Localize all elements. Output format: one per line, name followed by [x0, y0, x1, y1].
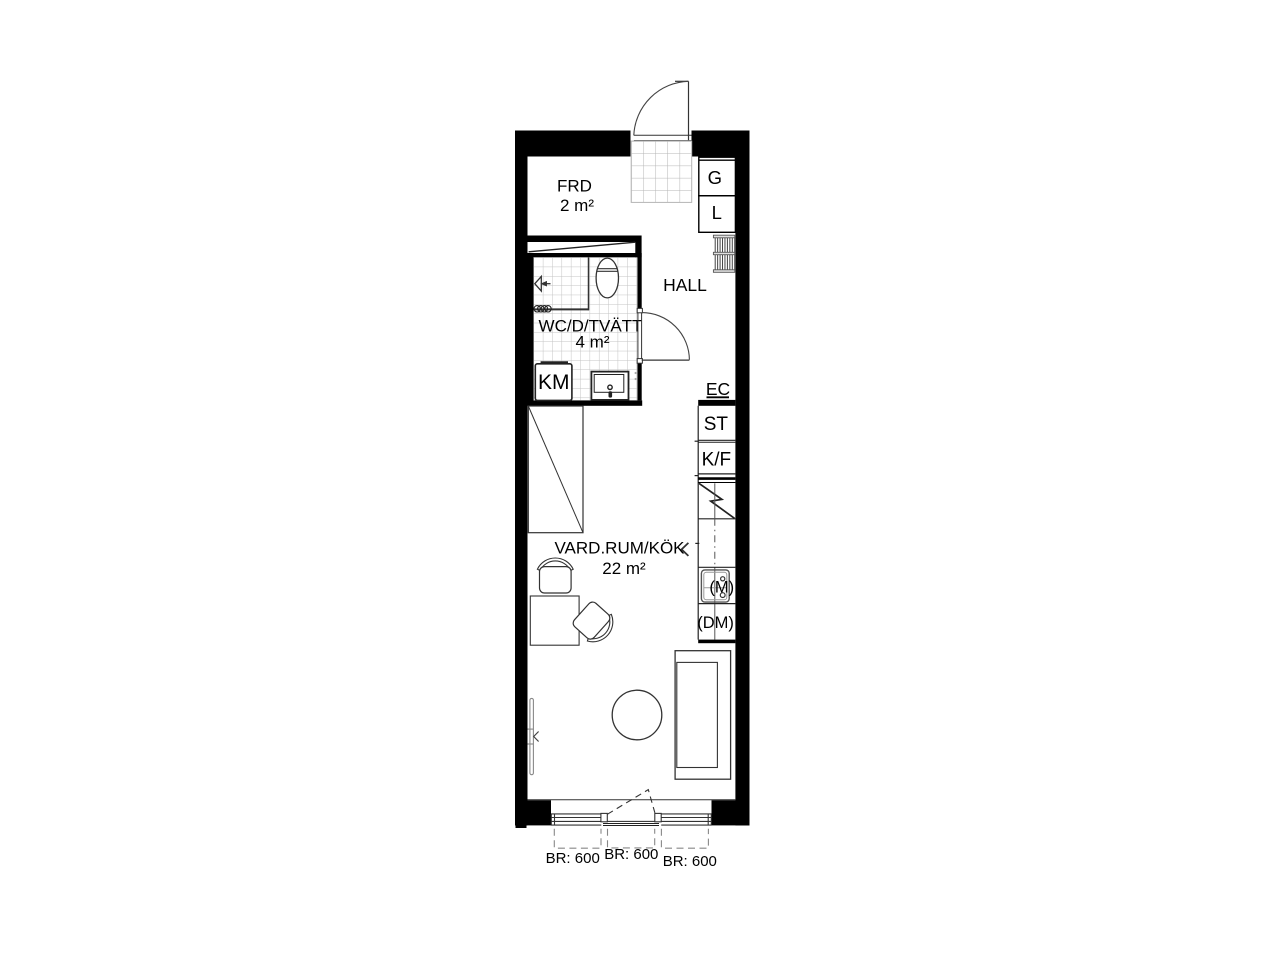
svg-text:HALL: HALL — [663, 275, 707, 295]
svg-text:EC: EC — [706, 379, 730, 399]
svg-text:BR: 600: BR: 600 — [604, 846, 658, 863]
svg-text:BR: 600: BR: 600 — [663, 853, 717, 870]
svg-text:4 m²: 4 m² — [576, 333, 610, 352]
svg-text:L: L — [712, 202, 722, 223]
svg-text:KM: KM — [538, 371, 570, 394]
svg-text:22 m²: 22 m² — [602, 559, 646, 578]
svg-text:VARD.RUM/KÖK: VARD.RUM/KÖK — [554, 539, 685, 558]
svg-text:FRD: FRD — [557, 176, 592, 195]
svg-text:K/F: K/F — [702, 450, 732, 471]
svg-text:G: G — [708, 167, 722, 188]
svg-text:(M): (M) — [709, 579, 734, 597]
svg-text:2 m²: 2 m² — [560, 196, 594, 215]
svg-text:BR: 600: BR: 600 — [546, 850, 600, 867]
svg-text:ST: ST — [704, 414, 729, 435]
svg-text:(DM): (DM) — [697, 614, 734, 632]
